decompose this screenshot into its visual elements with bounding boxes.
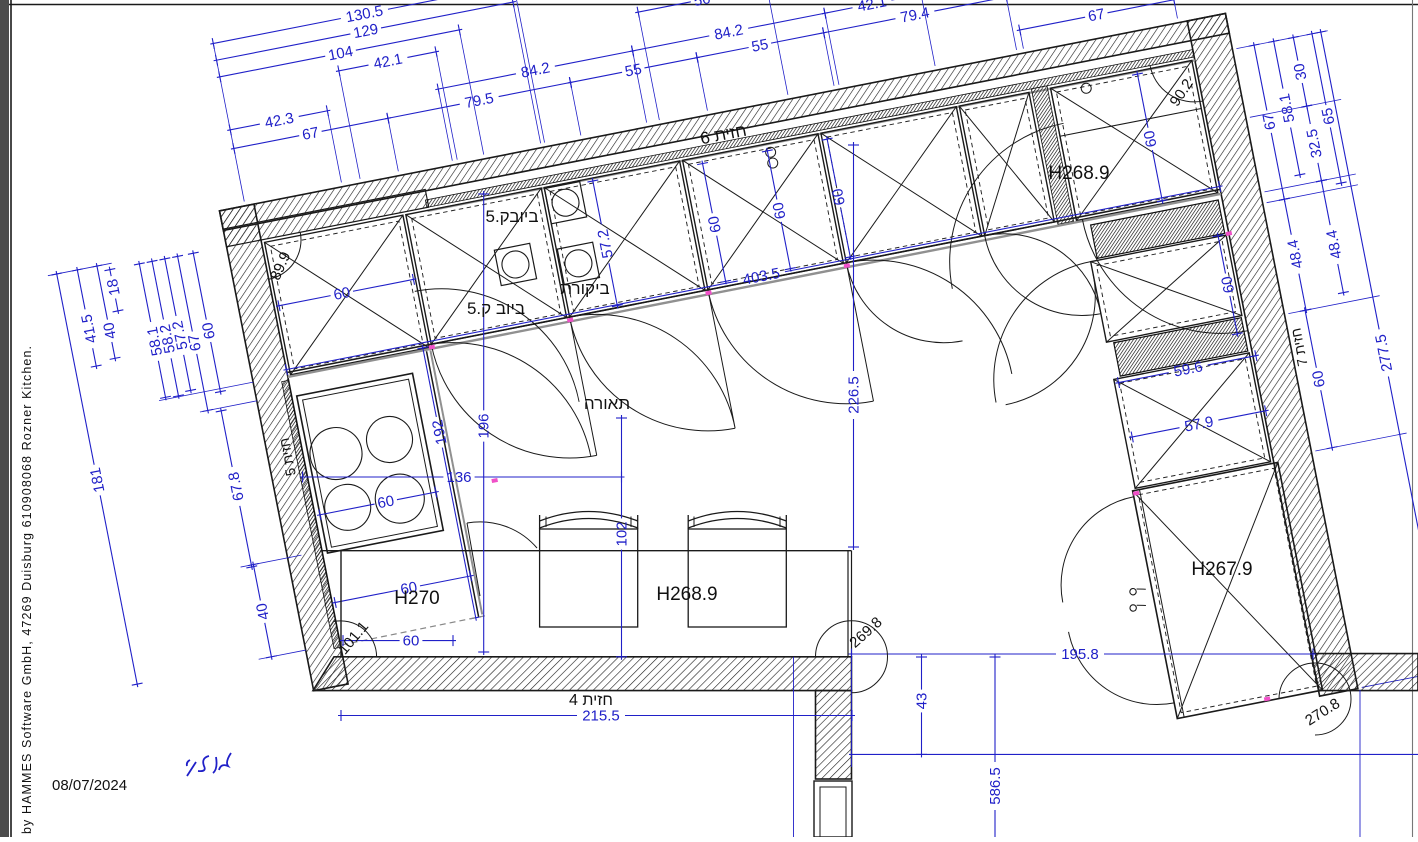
svg-text:40: 40 <box>100 321 120 341</box>
svg-text:H268.9: H268.9 <box>656 584 717 605</box>
svg-text:196: 196 <box>476 413 493 438</box>
svg-text:60: 60 <box>1218 275 1238 295</box>
svg-text:136: 136 <box>446 469 471 486</box>
svg-text:55: 55 <box>624 61 644 81</box>
svg-text:60: 60 <box>829 187 849 207</box>
svg-text:H267.9: H267.9 <box>1191 559 1252 580</box>
svg-text:60: 60 <box>705 214 725 234</box>
svg-text:40: 40 <box>253 602 273 622</box>
svg-text:ביובק.5: ביובק.5 <box>485 207 538 226</box>
svg-text:60: 60 <box>199 321 219 341</box>
svg-text:H270: H270 <box>394 588 439 609</box>
svg-text:102: 102 <box>614 521 631 546</box>
svg-text:H268.9: H268.9 <box>1048 163 1109 184</box>
svg-text:08/07/2024: 08/07/2024 <box>52 777 127 794</box>
svg-text:ביקורת: ביקורת <box>560 279 609 298</box>
svg-text:195.8: 195.8 <box>1061 646 1099 663</box>
svg-text:60: 60 <box>1309 369 1329 389</box>
svg-text:215.5: 215.5 <box>582 708 620 725</box>
svg-text:55: 55 <box>750 36 770 56</box>
svg-text:60: 60 <box>403 633 420 650</box>
svg-text:60: 60 <box>332 284 352 304</box>
svg-text:43: 43 <box>914 693 931 710</box>
svg-text:חזית 4: חזית 4 <box>569 692 613 709</box>
svg-text:18: 18 <box>104 277 124 297</box>
svg-text:30: 30 <box>1291 62 1311 82</box>
svg-text:67: 67 <box>301 124 321 144</box>
svg-text:60: 60 <box>376 492 396 512</box>
svg-text:by HAMMES Software GmbH, 47269: by HAMMES Software GmbH, 47269 Duisburg … <box>20 345 34 834</box>
svg-text:586.5: 586.5 <box>987 767 1004 805</box>
svg-text:60: 60 <box>770 201 790 221</box>
svg-text:67: 67 <box>1087 6 1107 26</box>
svg-text:60: 60 <box>1141 129 1161 149</box>
svg-text:ביוב ק.5: ביוב ק.5 <box>467 299 525 318</box>
svg-text:תאורה: תאורה <box>584 394 630 413</box>
svg-text:226.5: 226.5 <box>846 376 863 414</box>
